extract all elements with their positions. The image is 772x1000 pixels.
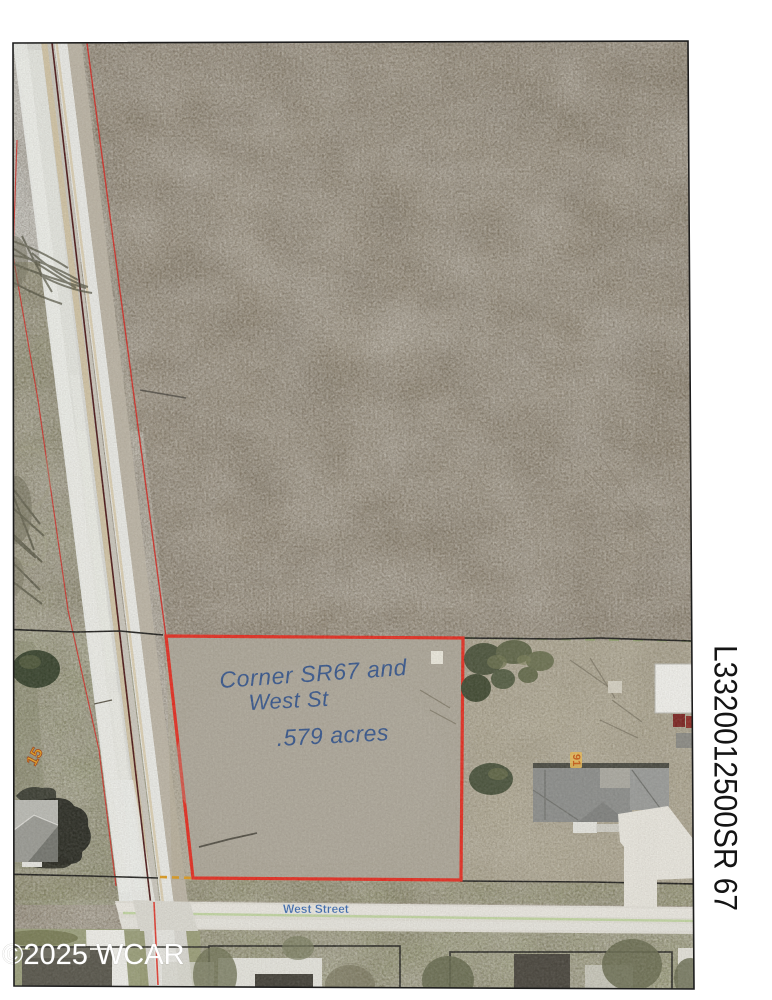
svg-text:L3320012500SR 67: L3320012500SR 67 (708, 645, 744, 911)
svg-text:©2025 WCAR: ©2025 WCAR (2, 939, 185, 971)
